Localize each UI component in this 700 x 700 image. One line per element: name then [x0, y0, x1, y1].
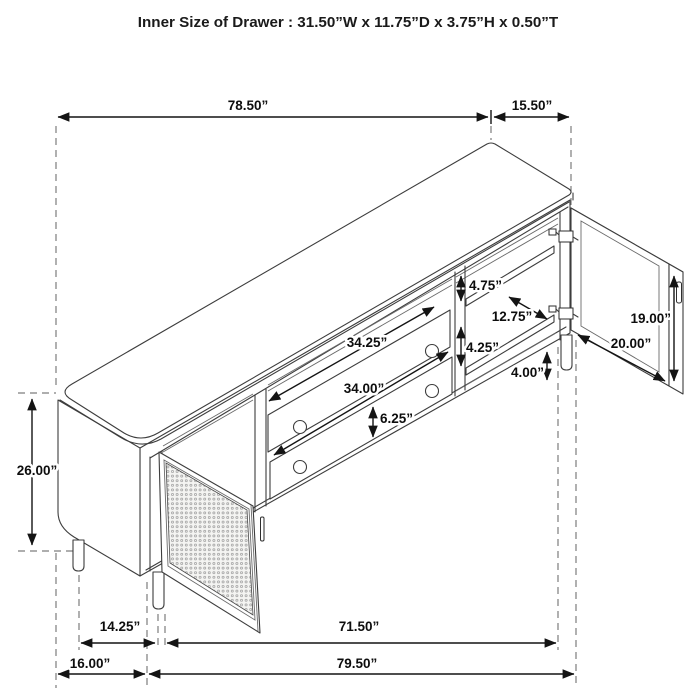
- dim-left-leg-inset: 14.25”: [81, 619, 155, 643]
- leg-front-left: [73, 540, 84, 571]
- dimension-label: 71.50”: [339, 619, 380, 634]
- right-door-face: [571, 208, 669, 386]
- dimension-label: 4.75”: [469, 278, 502, 293]
- dimension-label: 78.50”: [228, 98, 269, 113]
- dim-side-depth: 15.50”: [494, 98, 569, 117]
- drawer-knob: [426, 345, 439, 358]
- right-door-handle-notch: [677, 282, 682, 303]
- dimension-label: 6.25”: [380, 411, 413, 426]
- hinge-plate: [549, 229, 556, 235]
- dimension-label: 20.00”: [611, 336, 652, 351]
- dim-base-overall-width: 79.50”: [149, 656, 574, 674]
- dim-left-section-depth: 16.00”: [58, 656, 145, 674]
- dimension-label: 12.75”: [492, 309, 533, 324]
- diagram-title: Inner Size of Drawer : 31.50”W x 11.75”D…: [138, 14, 559, 31]
- dimension-label: 34.00”: [344, 381, 385, 396]
- leg-center-left: [153, 572, 164, 609]
- left-door-handle-notch: [261, 517, 265, 541]
- dimension-label: 26.00”: [17, 463, 58, 478]
- dimension-label: 4.00”: [511, 365, 544, 380]
- drawer-knob: [426, 385, 439, 398]
- dimension-label: 15.50”: [512, 98, 553, 113]
- hinge-plate: [549, 306, 556, 312]
- drawer-knob: [294, 421, 307, 434]
- dim-overall-height: 26.00”: [17, 399, 58, 545]
- hinge-body: [559, 308, 573, 319]
- dimension-label: 4.25”: [466, 340, 499, 355]
- dim-overall-width: 78.50”: [58, 98, 491, 124]
- dimension-label: 34.25”: [347, 335, 388, 350]
- dimension-label: 14.25”: [100, 619, 141, 634]
- furniture-dimension-diagram: 78.50” 15.50” 26.00” 4.75” 12.75” 4.25” …: [0, 0, 700, 700]
- dimension-label: 19.00”: [630, 311, 671, 326]
- hinge-body: [559, 231, 573, 242]
- leg-front-right: [561, 335, 572, 370]
- dim-base-span: 71.50”: [167, 619, 556, 643]
- dimension-label: 16.00”: [70, 656, 111, 671]
- drawer-knob: [294, 461, 307, 474]
- dimension-label: 79.50”: [337, 656, 378, 671]
- diagram-canvas: 78.50” 15.50” 26.00” 4.75” 12.75” 4.25” …: [0, 0, 700, 700]
